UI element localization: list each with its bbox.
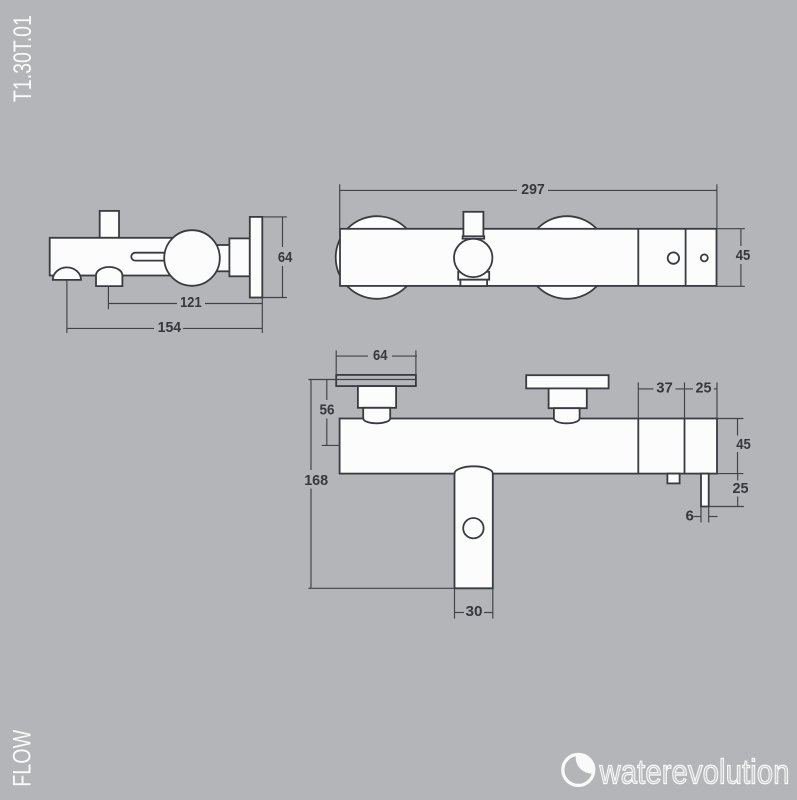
svg-text:154: 154 xyxy=(158,319,182,336)
svg-text:25: 25 xyxy=(733,480,749,497)
svg-text:64: 64 xyxy=(373,347,388,364)
svg-text:6: 6 xyxy=(686,508,694,525)
svg-text:168: 168 xyxy=(304,472,328,489)
svg-text:297: 297 xyxy=(521,181,545,198)
svg-text:25: 25 xyxy=(696,380,712,397)
svg-text:45: 45 xyxy=(736,247,751,264)
svg-text:64: 64 xyxy=(278,249,293,266)
svg-text:45: 45 xyxy=(736,436,751,453)
svg-text:56: 56 xyxy=(320,402,335,419)
svg-text:T1.30T.01: T1.30T.01 xyxy=(9,15,37,102)
svg-text:30: 30 xyxy=(466,603,483,620)
svg-text:FLOW: FLOW xyxy=(9,729,37,786)
svg-text:waterevolution: waterevolution xyxy=(599,754,790,792)
svg-text:121: 121 xyxy=(180,294,202,311)
svg-text:37: 37 xyxy=(656,380,673,397)
